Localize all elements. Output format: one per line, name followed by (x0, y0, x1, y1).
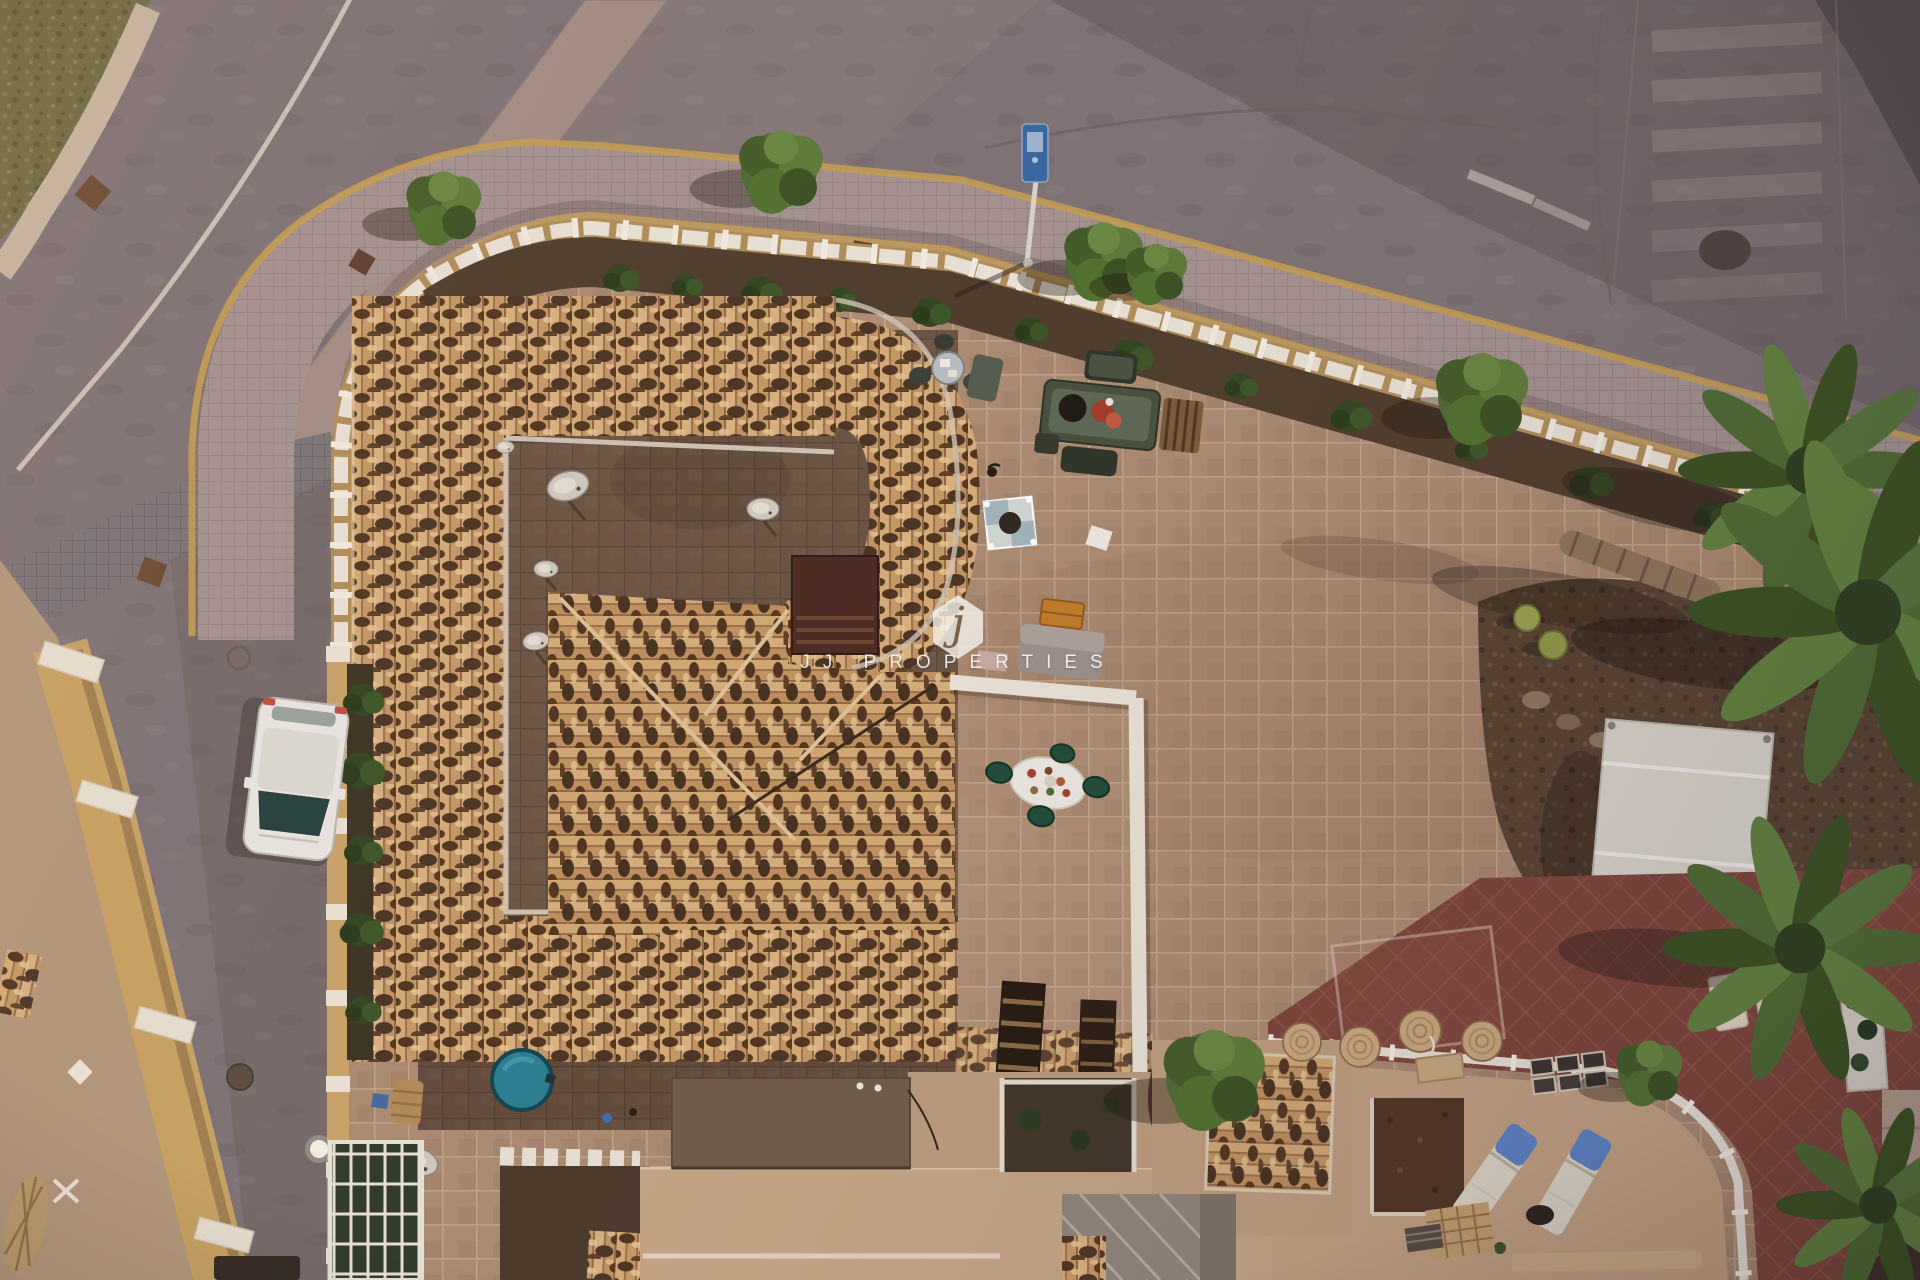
aerial-photo: j JJ PROPERTIES (0, 0, 1920, 1280)
watermark-logo-letter: j (951, 602, 965, 646)
watermark-brand-text: JJ PROPERTIES (708, 652, 1208, 674)
